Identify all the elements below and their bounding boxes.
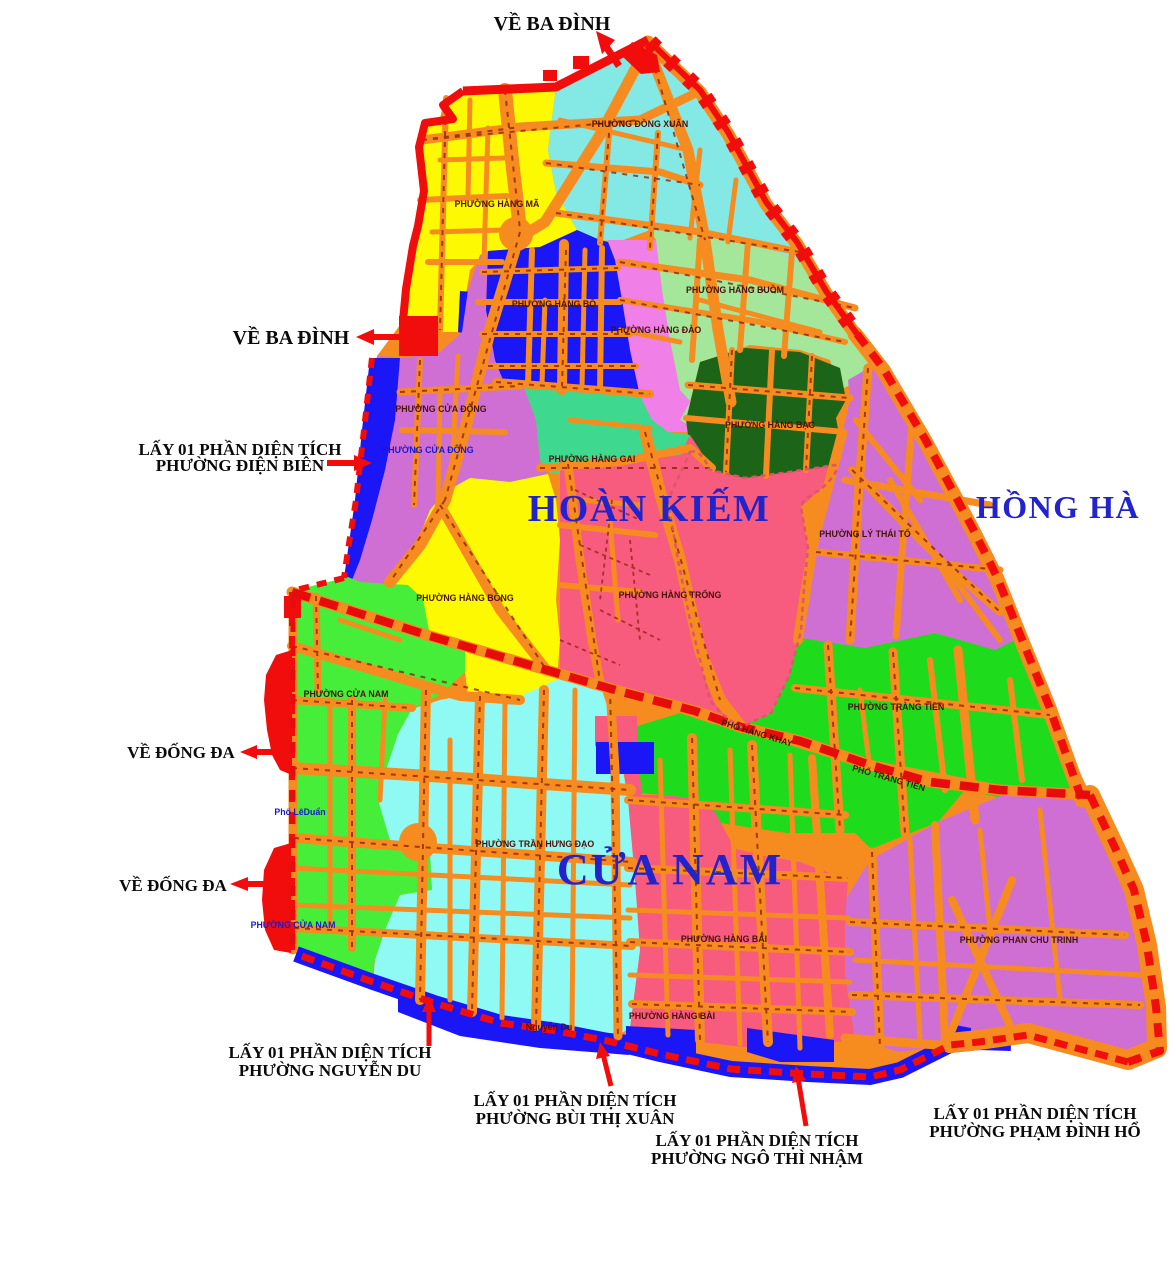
svg-text:PHƯỜNG CỬA ĐÔNG: PHƯỜNG CỬA ĐÔNG <box>382 444 473 455</box>
svg-text:PHƯỜNG PHAN CHU TRINH: PHƯỜNG PHAN CHU TRINH <box>960 934 1078 945</box>
svg-text:PHƯỜNG HÀNG GAI: PHƯỜNG HÀNG GAI <box>549 453 636 464</box>
svg-text:PHƯỜNG CỬA NAM: PHƯỜNG CỬA NAM <box>304 688 389 699</box>
svg-text:PHƯỜNG HÀNG BÀI: PHƯỜNG HÀNG BÀI <box>681 933 767 944</box>
svg-text:VỀ ĐỐNG ĐA: VỀ ĐỐNG ĐA <box>127 742 235 762</box>
svg-text:PHƯỜNG HÀNG MÃ: PHƯỜNG HÀNG MÃ <box>455 198 540 209</box>
svg-text:LẤY 01 PHẦN DIỆN TÍCH: LẤY 01 PHẦN DIỆN TÍCH <box>655 1131 858 1150</box>
svg-text:PHƯỜNG CỬA ĐÔNG: PHƯỜNG CỬA ĐÔNG <box>395 403 486 414</box>
svg-text:HỒNG HÀ: HỒNG HÀ <box>976 489 1140 525</box>
svg-text:PHƯỜNG NGUYỄN DU: PHƯỜNG NGUYỄN DU <box>239 1061 422 1080</box>
svg-text:PHƯỜNG TRÀNG TIỀN: PHƯỜNG TRÀNG TIỀN <box>848 701 944 712</box>
svg-text:VỀ BA ĐÌNH: VỀ BA ĐÌNH <box>494 11 611 35</box>
svg-text:LẤY 01 PHẦN DIỆN TÍCH: LẤY 01 PHẦN DIỆN TÍCH <box>933 1104 1136 1123</box>
svg-text:HOÀN KIẾM: HOÀN KIẾM <box>528 487 771 530</box>
svg-text:LẤY 01 PHẦN DIỆN TÍCH: LẤY 01 PHẦN DIỆN TÍCH <box>473 1091 676 1110</box>
svg-text:PHƯỜNG PHẠM ĐÌNH HỔ: PHƯỜNG PHẠM ĐÌNH HỔ <box>929 1121 1140 1141</box>
svg-text:PHƯỜNG HÀNG ĐÀO: PHƯỜNG HÀNG ĐÀO <box>611 324 702 335</box>
svg-text:CỬA NAM: CỬA NAM <box>557 845 783 894</box>
svg-text:PHƯỜNG LÝ THÁI TỔ: PHƯỜNG LÝ THÁI TỔ <box>819 528 911 539</box>
svg-text:PHƯỜNG BÙI THỊ XUÂN: PHƯỜNG BÙI THỊ XUÂN <box>476 1109 676 1128</box>
svg-text:PHƯỜNG HÀNG BUỒM: PHƯỜNG HÀNG BUỒM <box>686 284 784 295</box>
svg-text:Nguyễn Du: Nguyễn Du <box>526 1022 572 1032</box>
svg-text:PHƯỜNG NGÔ THÌ NHẬM: PHƯỜNG NGÔ THÌ NHẬM <box>651 1149 863 1168</box>
svg-text:VỀ BA ĐÌNH: VỀ BA ĐÌNH <box>233 325 350 349</box>
svg-text:PHƯỜNG ĐỒNG XUÂN: PHƯỜNG ĐỒNG XUÂN <box>592 118 688 129</box>
svg-text:PHƯỜNG HÀNG BÀI: PHƯỜNG HÀNG BÀI <box>629 1010 715 1021</box>
svg-text:PHƯỜNG CỬA NAM: PHƯỜNG CỬA NAM <box>251 919 336 930</box>
svg-text:PHƯỜNG HÀNG BẠC: PHƯỜNG HÀNG BẠC <box>725 419 816 430</box>
svg-text:VỀ ĐỐNG ĐA: VỀ ĐỐNG ĐA <box>119 875 227 895</box>
svg-text:LẤY 01 PHẦN DIỆN TÍCH: LẤY 01 PHẦN DIỆN TÍCH <box>228 1043 431 1062</box>
svg-text:PHƯỜNG ĐIỆN BIÊN: PHƯỜNG ĐIỆN BIÊN <box>156 456 325 475</box>
svg-text:Phố LêDuẩn: Phố LêDuẩn <box>274 807 325 817</box>
svg-text:PHƯỜNG HÀNG BÔNG: PHƯỜNG HÀNG BÔNG <box>416 592 514 603</box>
svg-text:PHƯỜNG HÀNG BỒ: PHƯỜNG HÀNG BỒ <box>512 298 596 309</box>
svg-text:PHƯỜNG HÀNG TRỐNG: PHƯỜNG HÀNG TRỐNG <box>619 589 722 600</box>
